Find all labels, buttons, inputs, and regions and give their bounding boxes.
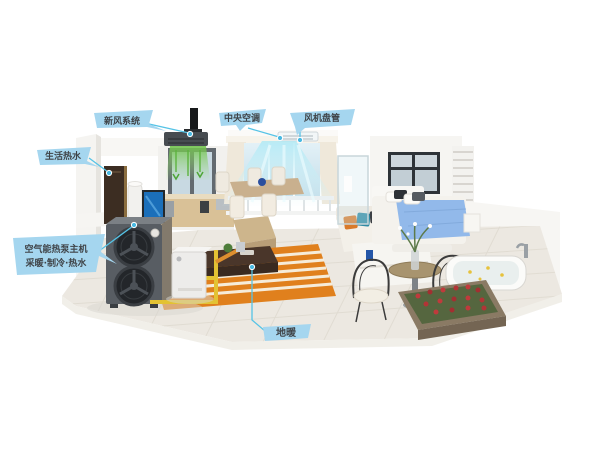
nightstand (464, 214, 480, 232)
anchor-dot-hot-water (106, 170, 111, 175)
fresh-air-flow (166, 146, 210, 180)
anchor-dot-fan-coil (297, 137, 302, 142)
callout-central-ac-label: 中央空调 (224, 112, 260, 124)
bed-bench (392, 244, 452, 252)
manifold (236, 242, 245, 252)
anchor-dot-fresh-air (187, 131, 192, 136)
water-heater-tank (128, 182, 142, 222)
towel (344, 176, 352, 192)
callout-fresh-air: 新风系统 (94, 110, 166, 131)
callout-central-ac: 中央空调 (219, 109, 266, 131)
callout-fresh-air-label: 新风系统 (104, 115, 140, 127)
heat-pump-home-diagram: 新风系统 中央空调 风机盘管 生活热水 空气能热泵主机 采暖·制冷·热水 地暖 (0, 0, 600, 450)
brand-logo-badge (151, 229, 159, 237)
dining-chair (230, 196, 244, 218)
anchor-dot-heat-pump (131, 222, 136, 227)
anchor-dot-floor-heating (249, 264, 254, 269)
dining-chair (272, 167, 285, 185)
table-centerpiece (258, 178, 266, 186)
heat-pump-outdoor-unit (106, 217, 172, 308)
fan-top (115, 228, 153, 266)
shower-glass (338, 156, 368, 224)
dining-chair (262, 194, 276, 216)
coffee-machine (200, 201, 209, 213)
callout-floor-heating-label: 地暖 (276, 326, 297, 339)
callout-fan-coil-label: 风机盘管 (304, 112, 340, 124)
callout-heat-pump-label-line1: 空气能热泵主机 (24, 243, 87, 255)
callout-hot-water-label: 生活热水 (45, 150, 82, 162)
anchor-dot-central-ac (277, 135, 282, 140)
callout-heat-pump-label-line2: 采暖·制冷·热水 (25, 257, 88, 269)
dining-chair (216, 172, 229, 192)
bed-pillow-gray (412, 192, 425, 201)
scene: 新风系统 中央空调 风机盘管 生活热水 空气能热泵主机 采暖·制冷·热水 地暖 (0, 0, 600, 450)
table-plant (224, 244, 233, 253)
fresh-air-duct-unit (164, 108, 208, 146)
fan-bottom (115, 267, 153, 305)
